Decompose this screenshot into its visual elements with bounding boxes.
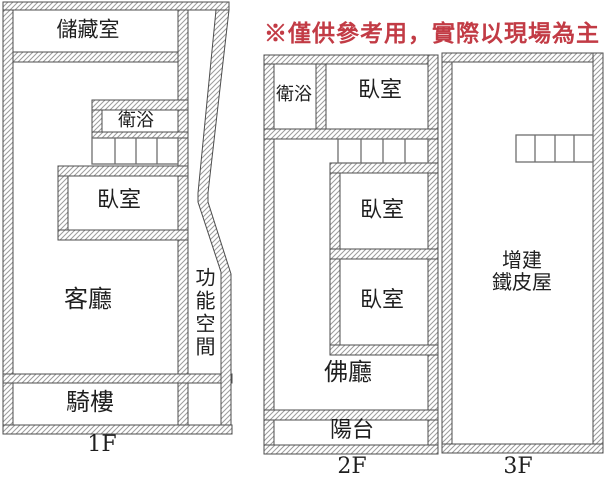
1f-staircase (92, 138, 178, 164)
floor-2f-walls (264, 55, 438, 454)
floor-label-2f: 2F (337, 455, 366, 479)
room-label-buddha-hall: 佛廳 (324, 359, 372, 385)
3f-outer-top-wall (442, 53, 603, 62)
1f-arcade-right-divider-wall (178, 383, 188, 425)
1f-arcade-top-wall (3, 374, 232, 383)
2f-outer-top-wall (264, 55, 438, 64)
2f-outer-left-wall (264, 55, 274, 454)
room-label-1f-bedroom: 臥室 (97, 189, 141, 213)
1f-outer-left-wall (3, 2, 13, 434)
room-label-1f-bathroom: 衛浴 (118, 111, 154, 131)
2f-outer-bottom-wall (264, 445, 438, 454)
1f-bathroom-bottom-wall (92, 132, 188, 138)
1f-bedroom-top-wall (58, 166, 188, 176)
1f-bedroom-bottom-wall (58, 230, 188, 240)
room-label-balcony: 陽台 (330, 419, 374, 443)
floor-plan-canvas: ※僅供參考用，實際以現場為主 儲藏室 衛浴 臥室 客廳 功能空間 騎樓 1F 衛… (0, 0, 606, 480)
1f-slanted-right-wall (198, 10, 231, 425)
3f-staircase (516, 135, 593, 162)
2f-between-bedrooms-wall (330, 249, 438, 259)
room-label-annex-tin-house: 增建 鐵皮屋 (492, 249, 552, 293)
room-label-arcade: 騎樓 (66, 389, 114, 415)
room-label-living-room: 客廳 (64, 286, 112, 312)
room-label-2f-bedroom-mid: 臥室 (360, 199, 404, 223)
disclaimer-text: ※僅供參考用，實際以現場為主 (264, 14, 600, 48)
2f-bedroom-low-bottom-wall (330, 345, 438, 355)
room-label-2f-bedroom-low: 臥室 (360, 289, 404, 313)
staircase-outline (92, 138, 178, 164)
room-label-functional-space: 功能空間 (193, 267, 215, 359)
1f-outer-top-wall (3, 2, 229, 10)
1f-main-right-wall (178, 10, 188, 383)
1f-bathroom-top-wall (92, 100, 188, 110)
floor-1f-walls (3, 2, 232, 434)
3f-outer-bottom-wall (442, 444, 603, 453)
floor-label-3f: 3F (503, 455, 532, 479)
room-label-storage: 儲藏室 (57, 18, 120, 41)
2f-bathroom-right-wall (316, 64, 326, 139)
room-label-2f-bedroom-top: 臥室 (358, 79, 402, 103)
room-label-2f-bathroom: 衛浴 (276, 85, 312, 105)
1f-outer-bottom-wall (3, 425, 232, 434)
1f-storage-bottom-wall (13, 52, 188, 62)
3f-outer-right-wall (593, 53, 603, 453)
2f-upper-divider-wall (264, 129, 438, 139)
2f-staircase (338, 139, 428, 163)
2f-bedroom-mid-top-wall (330, 163, 438, 173)
floor-label-1f: 1F (87, 433, 116, 457)
3f-outer-left-wall (442, 53, 452, 453)
